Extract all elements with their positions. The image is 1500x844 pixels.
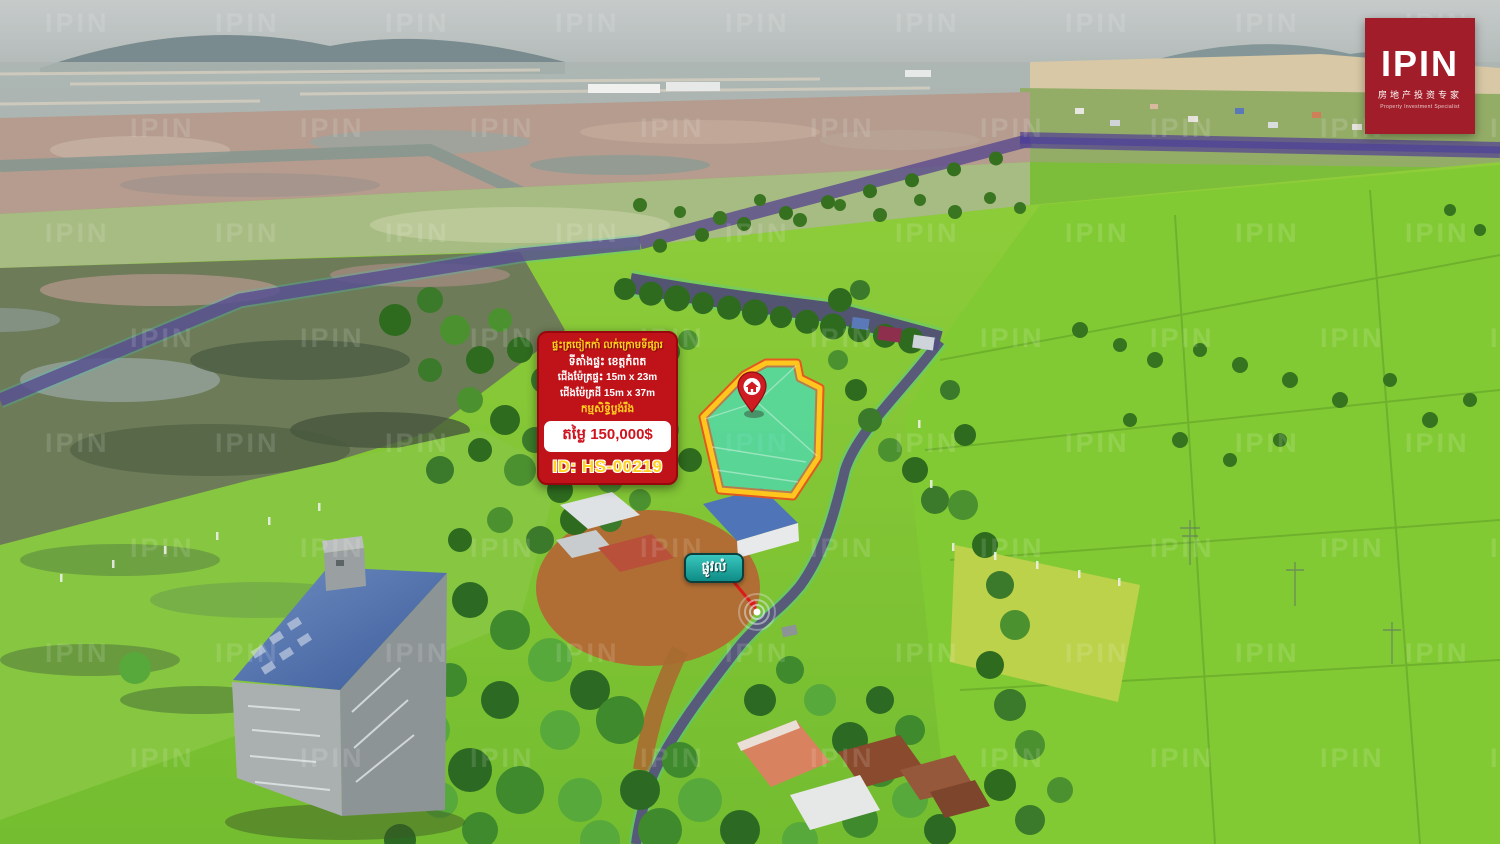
watermark-text: IPIN [385, 638, 450, 668]
tree-canopy [540, 710, 580, 750]
watermark-text: IPIN [1150, 743, 1215, 773]
tree-canopy [921, 486, 949, 514]
watermark-text: IPIN [725, 638, 790, 668]
watermark-text: IPIN [45, 218, 110, 248]
tree-canopy [457, 387, 483, 413]
tree-canopy [695, 228, 709, 242]
tree-canopy [468, 438, 492, 462]
tree-canopy [1113, 338, 1127, 352]
listing-id-badge: ID: HS-00219 [553, 457, 663, 477]
tree-canopy [417, 287, 443, 313]
tree-canopy [426, 456, 454, 484]
watermark-text: IPIN [215, 428, 280, 458]
tree-canopy [633, 198, 647, 212]
listing-headline: ផ្ទះត្រចៀកកាំ លក់ក្រោមទីផ្សារ [542, 340, 673, 353]
watermark-text: IPIN [810, 113, 875, 143]
watermark-text: IPIN [810, 533, 875, 563]
watermark-text: IPIN [300, 743, 365, 773]
watermark-text: IPIN [45, 428, 110, 458]
tree-canopy [1332, 392, 1348, 408]
tree-canopy [558, 778, 602, 822]
tree-canopy [1463, 393, 1477, 407]
tree-canopy [1015, 805, 1045, 835]
watermark-text: IPIN [470, 323, 535, 353]
tree-canopy [866, 686, 894, 714]
tree-canopy [1232, 357, 1248, 373]
tree-canopy [490, 405, 520, 435]
watermark-text: IPIN [980, 533, 1045, 563]
watermark-text: IPIN [895, 428, 960, 458]
watermark-text: IPIN [45, 8, 110, 38]
tree-canopy [858, 408, 882, 432]
watermark-text: IPIN [1065, 8, 1130, 38]
watermark-text: IPIN [1235, 638, 1300, 668]
watermark-text: IPIN [130, 113, 195, 143]
watermark-text: IPIN [300, 113, 365, 143]
tree-canopy [504, 454, 536, 486]
tree-canopy [448, 528, 472, 552]
tree-canopy [905, 173, 919, 187]
tree-canopy [1147, 352, 1163, 368]
tree-canopy [678, 778, 722, 822]
watermark-text: IPIN [1405, 428, 1470, 458]
watermark-text: IPIN [130, 743, 195, 773]
watermark-text: IPIN [980, 323, 1045, 353]
tree-canopy [629, 489, 651, 511]
tree-canopy [744, 684, 776, 716]
aerial-listing-photo: IPINIPINIPINIPINIPINIPINIPINIPINIPINIPIN… [0, 0, 1500, 844]
tree-canopy [1282, 372, 1298, 388]
watermark-text: IPIN [470, 113, 535, 143]
tree-canopy [639, 282, 663, 306]
watermark-text: IPIN [130, 533, 195, 563]
tree-canopy [850, 280, 870, 300]
tree-canopy [1444, 204, 1456, 216]
tree-canopy [948, 205, 962, 219]
watermark-text: IPIN [1065, 638, 1130, 668]
listing-land-size: ជើងម៉ែត្រដី 15m x 37m [542, 388, 673, 401]
watermark-text: IPIN [555, 8, 620, 38]
tree-canopy [845, 379, 867, 401]
watermark-text: IPIN [555, 218, 620, 248]
tree-canopy [863, 184, 877, 198]
tree-canopy [754, 194, 766, 206]
watermark-text: IPIN [300, 533, 365, 563]
watermark-text: IPIN [640, 113, 705, 143]
brand-tagline: Property Investment Specialist [1380, 104, 1460, 110]
tree-canopy [1000, 610, 1030, 640]
watermark-text: IPIN [1150, 113, 1215, 143]
watermark-text: IPIN [895, 638, 960, 668]
tree-canopy [986, 571, 1014, 599]
watermark-text: IPIN [385, 8, 450, 38]
tree-canopy [770, 306, 792, 328]
watermark-text: IPIN [895, 8, 960, 38]
watermark-text: IPIN [1490, 113, 1500, 143]
tree-canopy [692, 292, 714, 314]
tree-canopy [984, 769, 1016, 801]
watermark-text: IPIN [555, 638, 620, 668]
watermark-text: IPIN [895, 218, 960, 248]
tree-canopy [793, 213, 807, 227]
watermark-text: IPIN [980, 743, 1045, 773]
watermark-text: IPIN [1235, 218, 1300, 248]
watermark-text: IPIN [1320, 743, 1385, 773]
tree-canopy [914, 194, 926, 206]
tree-canopy [1072, 322, 1088, 338]
aerial-photo-scene: IPINIPINIPINIPINIPINIPINIPINIPINIPINIPIN… [0, 0, 1500, 844]
watermark-text: IPIN [1320, 323, 1385, 353]
tree-canopy [418, 358, 442, 382]
tree-canopy [1123, 413, 1137, 427]
watermark-text: IPIN [385, 428, 450, 458]
tree-canopy [828, 350, 848, 370]
tree-canopy [742, 299, 768, 325]
watermark-text: IPIN [725, 8, 790, 38]
brand-chinese-tagline: 房地产投资专家 [1378, 88, 1462, 101]
tree-canopy [379, 304, 411, 336]
tree-canopy [1422, 412, 1438, 428]
watermark-text: IPIN [725, 428, 790, 458]
watermark-text: IPIN [1405, 218, 1470, 248]
watermark-text: IPIN [1235, 428, 1300, 458]
watermark-text: IPIN [1065, 218, 1130, 248]
tree-canopy [902, 457, 928, 483]
tree-canopy [984, 192, 996, 204]
watermark-text: IPIN [725, 218, 790, 248]
tree-canopy [828, 288, 852, 312]
watermark-text: IPIN [1490, 533, 1500, 563]
tree-canopy [804, 684, 836, 716]
tree-canopy [678, 448, 702, 472]
tree-canopy [674, 206, 686, 218]
tree-canopy [994, 689, 1026, 721]
watermark-text: IPIN [385, 218, 450, 248]
tree-canopy [614, 278, 636, 300]
tree-canopy [976, 651, 1004, 679]
watermark-text: IPIN [215, 8, 280, 38]
watermark-text: IPIN [215, 218, 280, 248]
tree-canopy [834, 199, 846, 211]
tree-canopy [873, 208, 887, 222]
tree-canopy [940, 380, 960, 400]
tree-canopy [948, 490, 978, 520]
listing-ownership: កម្មសិទ្ធិប្លង់រឹង [542, 403, 673, 416]
tree-canopy [989, 151, 1003, 165]
brand-logo: IPIN 房地产投资专家 Property Investment Special… [1365, 18, 1475, 134]
tree-canopy [452, 582, 488, 618]
tree-canopy [481, 681, 519, 719]
tree-canopy [821, 195, 835, 209]
watermark-text: IPIN [300, 323, 365, 353]
tree-canopy [1172, 432, 1188, 448]
watermark-text: IPIN [1490, 743, 1500, 773]
listing-house-size: ជើងម៉ែត្រផ្ទះ 15m x 23m [542, 372, 673, 385]
watermark-text: IPIN [1065, 428, 1130, 458]
tree-canopy [1014, 202, 1026, 214]
watermark-text: IPIN [470, 533, 535, 563]
brand-name: IPIN [1381, 46, 1459, 82]
watermark-text: IPIN [45, 638, 110, 668]
tree-canopy [947, 162, 961, 176]
watermark-text: IPIN [1150, 323, 1215, 353]
tree-canopy [596, 696, 644, 744]
tree-canopy [1047, 777, 1073, 803]
tree-canopy [1474, 224, 1486, 236]
watermark-text: IPIN [215, 638, 280, 668]
listing-info-card: ផ្ទះត្រចៀកកាំ លក់ក្រោមទីផ្សារ ទីតាំងផ្ទះ… [537, 331, 678, 485]
watermark-text: IPIN [1490, 323, 1500, 353]
tree-canopy [1383, 373, 1397, 387]
tree-canopy [440, 315, 470, 345]
tree-canopy [487, 507, 513, 533]
tree-canopy [653, 239, 667, 253]
watermark-text: IPIN [1235, 8, 1300, 38]
tree-canopy [490, 610, 530, 650]
tree-canopy [620, 770, 660, 810]
tree-canopy [664, 285, 690, 311]
watermark-text: IPIN [980, 113, 1045, 143]
road-label: ផ្លូវលំ [684, 553, 744, 583]
watermark-text: IPIN [810, 743, 875, 773]
listing-location: ទីតាំងផ្ទះ ខេត្តកំពត [542, 356, 673, 370]
tree-canopy [496, 766, 544, 814]
watermark-text: IPIN [130, 323, 195, 353]
watermark-text: IPIN [1150, 533, 1215, 563]
watermark-text: IPIN [1320, 533, 1385, 563]
watermark-text: IPIN [810, 323, 875, 353]
tree-canopy [717, 296, 741, 320]
tree-canopy [119, 652, 151, 684]
watermark-text: IPIN [640, 743, 705, 773]
watermark-text: IPIN [470, 743, 535, 773]
watermark-text: IPIN [1405, 638, 1470, 668]
price-badge: តម្លៃ 150,000$ [544, 421, 671, 452]
